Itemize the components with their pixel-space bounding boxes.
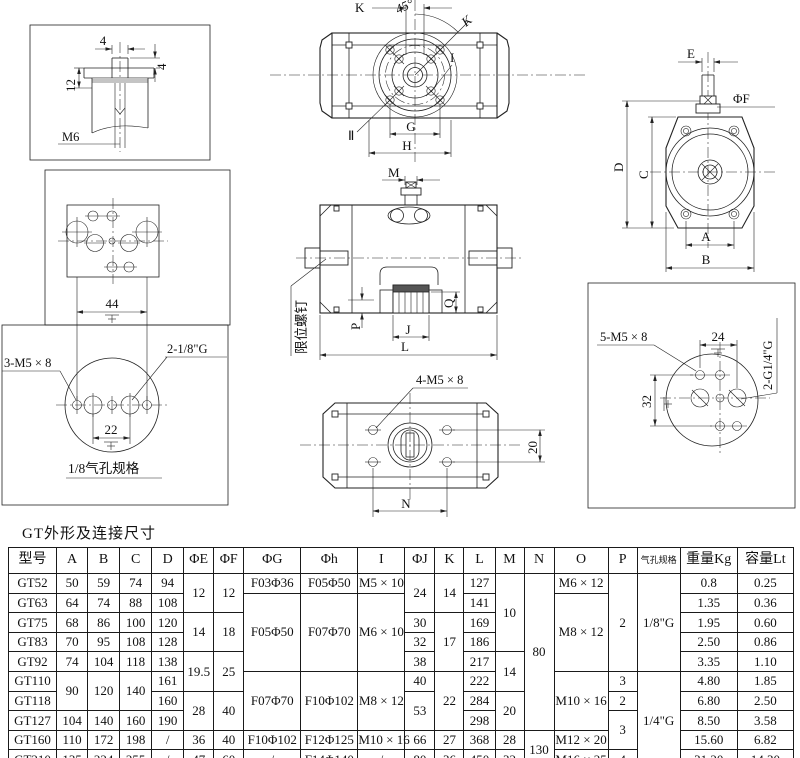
- spec-cell: 68: [57, 613, 88, 633]
- spec-cell: 2: [608, 691, 637, 711]
- spec-cell: 12: [214, 574, 244, 613]
- spec-cell: GT63: [9, 593, 57, 613]
- col-header: ΦE: [184, 548, 214, 574]
- spec-cell: 198: [120, 730, 152, 750]
- spec-cell: 0.36: [737, 593, 793, 613]
- spec-cell: 135: [57, 750, 88, 758]
- spec-cell: 120: [152, 613, 184, 633]
- spec-cell: 450: [464, 750, 495, 758]
- spec-cell: 24: [405, 574, 435, 613]
- spec-cell: 28: [495, 730, 524, 750]
- spec-cell: GT127: [9, 711, 57, 731]
- spec-cell: 217: [464, 652, 495, 672]
- dim-label-a: A: [701, 229, 711, 244]
- spec-cell: 40: [405, 671, 435, 691]
- spec-cell: 22: [435, 671, 464, 730]
- dim-label-g: G: [406, 119, 415, 134]
- dim-label-22: 22: [105, 422, 118, 437]
- spec-cell: 20: [495, 691, 524, 730]
- page-title: GT外形及连接尺寸: [22, 525, 156, 542]
- spec-cell: M8 × 12: [358, 671, 405, 730]
- spec-cell: 53: [405, 691, 435, 730]
- top-view-drawing: K 45° K I Ⅱ G H: [270, 0, 585, 162]
- spec-cell: 298: [464, 711, 495, 731]
- spec-cell: 1/8"G: [637, 574, 680, 672]
- spec-cell: F10Φ102: [301, 671, 358, 730]
- col-header: 型号: [9, 548, 57, 574]
- spec-cell: 19.5: [184, 652, 214, 691]
- spec-cell: M5 × 10: [358, 574, 405, 594]
- spec-cell: 50: [57, 574, 88, 594]
- dim-label-phi-f: ΦF: [733, 91, 750, 106]
- spec-cell: 172: [88, 730, 120, 750]
- end-view-drawing: E ΦF A B C D: [611, 46, 775, 272]
- spec-cell: 14: [184, 613, 214, 652]
- spec-cell: M8 × 12: [554, 593, 608, 671]
- spec-cell: 36: [184, 730, 214, 750]
- spec-table: 型号ABCDΦEΦFΦGΦhIΦJKLMNOP气孔规格重量Kg容量Lt GT52…: [8, 547, 794, 758]
- catalog-page: 4 4 12 M6: [0, 0, 800, 758]
- col-header: M: [495, 548, 524, 574]
- spec-cell: 120: [88, 671, 120, 710]
- col-header: 容量Lt: [737, 548, 793, 574]
- spec-cell: 94: [152, 574, 184, 594]
- spec-cell: 18: [214, 613, 244, 652]
- col-header: ΦG: [244, 548, 301, 574]
- col-header: D: [152, 548, 184, 574]
- spec-cell: 1.85: [737, 671, 793, 691]
- spec-cell: GT110: [9, 671, 57, 691]
- spec-cell: 1.10: [737, 652, 793, 672]
- spec-cell: 224: [88, 750, 120, 758]
- spec-cell: 0.8: [680, 574, 737, 594]
- spec-cell: F05Φ50: [301, 574, 358, 594]
- spec-cell: 31.20: [680, 750, 737, 758]
- thread-label-m6: M6: [62, 130, 79, 144]
- spec-cell: 1/4"G: [637, 671, 680, 758]
- spec-cell: GT52: [9, 574, 57, 594]
- port-spec-label: 2-G1/4"G: [761, 340, 775, 390]
- section-mark-ii: Ⅱ: [348, 128, 354, 143]
- spec-cell: F07Φ70: [301, 593, 358, 671]
- spec-cell: 88: [120, 593, 152, 613]
- dim-label-20: 20: [525, 441, 540, 454]
- spec-cell: 118: [120, 652, 152, 672]
- spec-cell: GT75: [9, 613, 57, 633]
- spec-cell: M16 × 25: [554, 750, 608, 758]
- col-header: A: [57, 548, 88, 574]
- spec-cell: 25: [214, 652, 244, 691]
- spec-cell: 0.60: [737, 613, 793, 633]
- spec-cell: 128: [152, 632, 184, 652]
- col-header: 气孔规格: [637, 548, 680, 574]
- dim-label-l: L: [401, 339, 409, 354]
- spec-cell: 160: [152, 691, 184, 711]
- spec-cell: 86: [88, 613, 120, 633]
- bolt-spec-label: 5-M5 × 8: [600, 330, 647, 344]
- spec-cell: 80: [524, 574, 554, 731]
- dim-label-h: H: [402, 138, 411, 153]
- spec-cell: 368: [464, 730, 495, 750]
- tolerance-mark: [104, 442, 118, 450]
- spec-cell: F12Φ125: [301, 730, 358, 750]
- dim-label-k: K: [355, 0, 365, 15]
- spec-cell: 4.80: [680, 671, 737, 691]
- spec-cell: 1.95: [680, 613, 737, 633]
- spec-cell: 74: [120, 574, 152, 594]
- dim-label-q: Q: [441, 298, 456, 308]
- spec-cell: 130: [524, 730, 554, 758]
- spec-cell: 2.50: [737, 691, 793, 711]
- col-header: I: [358, 548, 405, 574]
- spec-cell: /: [244, 750, 301, 758]
- spec-cell: F05Φ50: [244, 593, 301, 671]
- dim-label-45deg: 45°: [393, 0, 416, 17]
- dim-label-e: E: [687, 46, 695, 61]
- dim-label-i: I: [450, 50, 454, 65]
- spec-cell: 0.25: [737, 574, 793, 594]
- col-header: C: [120, 548, 152, 574]
- technical-drawings: 4 4 12 M6: [0, 0, 800, 545]
- spec-cell: 108: [120, 632, 152, 652]
- spec-cell: 38: [405, 652, 435, 672]
- dim-label-m: M: [388, 165, 400, 180]
- dim-label-p: P: [348, 323, 363, 330]
- spec-cell: 40: [214, 730, 244, 750]
- dim-label-24: 24: [712, 329, 726, 344]
- limit-screw-label: 限位螺钉: [294, 300, 309, 354]
- spec-cell: 222: [464, 671, 495, 691]
- spec-cell: /: [358, 750, 405, 758]
- spec-cell: 140: [88, 711, 120, 731]
- spec-cell: F03Φ36: [244, 574, 301, 594]
- table-row: GT52505974941212F03Φ36F05Φ50M5 × 1024141…: [9, 574, 794, 594]
- spec-cell: 74: [57, 652, 88, 672]
- spec-table-head-row: 型号ABCDΦEΦFΦGΦhIΦJKLMNOP气孔规格重量Kg容量Lt: [9, 548, 794, 574]
- spec-cell: 27: [435, 730, 464, 750]
- col-header: O: [554, 548, 608, 574]
- spec-cell: 140: [120, 671, 152, 710]
- spec-cell: 2.50: [680, 632, 737, 652]
- spec-cell: /: [152, 730, 184, 750]
- spec-cell: 190: [152, 711, 184, 731]
- tolerance-mark: [105, 315, 119, 323]
- bolt-spec-label: 4-M5 × 8: [416, 373, 463, 387]
- spec-cell: 47: [184, 750, 214, 758]
- air-port-caption: 1/8气孔规格: [68, 461, 140, 476]
- spec-cell: 14.30: [737, 750, 793, 758]
- col-header: ΦJ: [405, 548, 435, 574]
- dim-label-c: C: [636, 170, 651, 179]
- spec-cell: 32: [495, 750, 524, 758]
- spec-cell: 284: [464, 691, 495, 711]
- dim-label-tenon-width: 4: [100, 33, 107, 48]
- table-row: GT11090120140161F07Φ70F10Φ102M8 × 124022…: [9, 671, 794, 691]
- spec-cell: F10Φ102: [244, 730, 301, 750]
- spec-cell: F14Φ140: [301, 750, 358, 758]
- spec-cell: 186: [464, 632, 495, 652]
- spec-cell: 14: [435, 574, 464, 613]
- spec-cell: 14: [495, 652, 524, 691]
- spec-cell: 10: [495, 574, 524, 652]
- col-header: B: [88, 548, 120, 574]
- spec-cell: 2: [608, 574, 637, 672]
- spec-cell: 100: [120, 613, 152, 633]
- spec-cell: GT118: [9, 691, 57, 711]
- spec-cell: GT83: [9, 632, 57, 652]
- bolt-spec-label: 3-M5 × 8: [4, 356, 51, 370]
- spec-cell: 30: [405, 613, 435, 633]
- spec-cell: 104: [57, 711, 88, 731]
- spec-cell: M10 × 16: [554, 671, 608, 730]
- dim-label-k-diagonal: K: [458, 11, 476, 30]
- spec-cell: 6.80: [680, 691, 737, 711]
- spec-cell: 90: [57, 671, 88, 710]
- col-header: Φh: [301, 548, 358, 574]
- dim-label-d: D: [611, 163, 626, 172]
- col-header: 重量Kg: [680, 548, 737, 574]
- port-spec-label: 2-1/8"G: [167, 342, 208, 356]
- spec-cell: 60: [214, 750, 244, 758]
- spec-cell: 0.86: [737, 632, 793, 652]
- col-header: K: [435, 548, 464, 574]
- spec-cell: 138: [152, 652, 184, 672]
- dim-label-flange-thickness: 4: [154, 63, 169, 70]
- spec-cell: 8.50: [680, 711, 737, 731]
- spec-cell: 3: [608, 671, 637, 691]
- spec-cell: 169: [464, 613, 495, 633]
- spec-cell: GT210: [9, 750, 57, 758]
- spec-cell: 15.60: [680, 730, 737, 750]
- spec-table-body: GT52505974941212F03Φ36F05Φ50M5 × 1024141…: [9, 574, 794, 758]
- shaft-detail-drawing: 4 4 12 M6: [30, 25, 210, 160]
- spec-cell: 32: [405, 632, 435, 652]
- dim-label-b: B: [702, 252, 711, 267]
- spec-cell: GT160: [9, 730, 57, 750]
- spec-cell: 3: [608, 711, 637, 750]
- dim-label-44: 44: [106, 296, 120, 311]
- tolerance-mark: [664, 397, 672, 411]
- spec-cell: 127: [464, 574, 495, 594]
- spec-cell: 1.35: [680, 593, 737, 613]
- spec-cell: M10 × 16: [358, 730, 405, 750]
- dim-label-j: J: [405, 322, 410, 337]
- spec-cell: M6 × 12: [554, 574, 608, 594]
- dim-label-32: 32: [639, 395, 654, 408]
- dim-label-n: N: [401, 496, 411, 511]
- spec-cell: 4: [608, 750, 637, 758]
- tolerance-mark: [711, 349, 725, 357]
- spec-cell: 3.35: [680, 652, 737, 672]
- spec-cell: 104: [88, 652, 120, 672]
- spec-cell: 6.82: [737, 730, 793, 750]
- spec-cell: 3.58: [737, 711, 793, 731]
- spec-cell: F07Φ70: [244, 671, 301, 730]
- spec-cell: M12 × 20: [554, 730, 608, 750]
- air-port-quarter-drawing: 24 32 5-M5 × 8 2-G1/4"G: [588, 283, 795, 508]
- spec-cell: 40: [214, 691, 244, 730]
- air-port-eighth-drawing: 3-M5 × 8 2-1/8"G 22 1/8气孔规格: [2, 325, 228, 505]
- spec-cell: 28: [184, 691, 214, 730]
- spec-cell: 17: [435, 613, 464, 672]
- spec-cell: 255: [120, 750, 152, 758]
- spec-cell: 36: [435, 750, 464, 758]
- spec-cell: 108: [152, 593, 184, 613]
- spec-cell: 161: [152, 671, 184, 691]
- spec-cell: 70: [57, 632, 88, 652]
- bottom-view-drawing: 4-M5 × 8 20 N: [300, 373, 545, 517]
- spec-cell: 64: [57, 593, 88, 613]
- spec-cell: GT92: [9, 652, 57, 672]
- spec-cell: 95: [88, 632, 120, 652]
- col-header: N: [524, 548, 554, 574]
- spec-cell: 74: [88, 593, 120, 613]
- spec-cell: 141: [464, 593, 495, 613]
- spec-cell: /: [152, 750, 184, 758]
- spec-cell: 12: [184, 574, 214, 613]
- spec-cell: 80: [405, 750, 435, 758]
- spec-cell: 110: [57, 730, 88, 750]
- spec-cell: 59: [88, 574, 120, 594]
- spec-cell: 160: [120, 711, 152, 731]
- col-header: ΦF: [214, 548, 244, 574]
- col-header: P: [608, 548, 637, 574]
- spec-cell: M6 × 10: [358, 593, 405, 671]
- section-view-drawing: M Q P J L 限位螺钉: [291, 165, 522, 360]
- col-header: L: [464, 548, 495, 574]
- dim-label-shaft-height: 12: [63, 79, 78, 92]
